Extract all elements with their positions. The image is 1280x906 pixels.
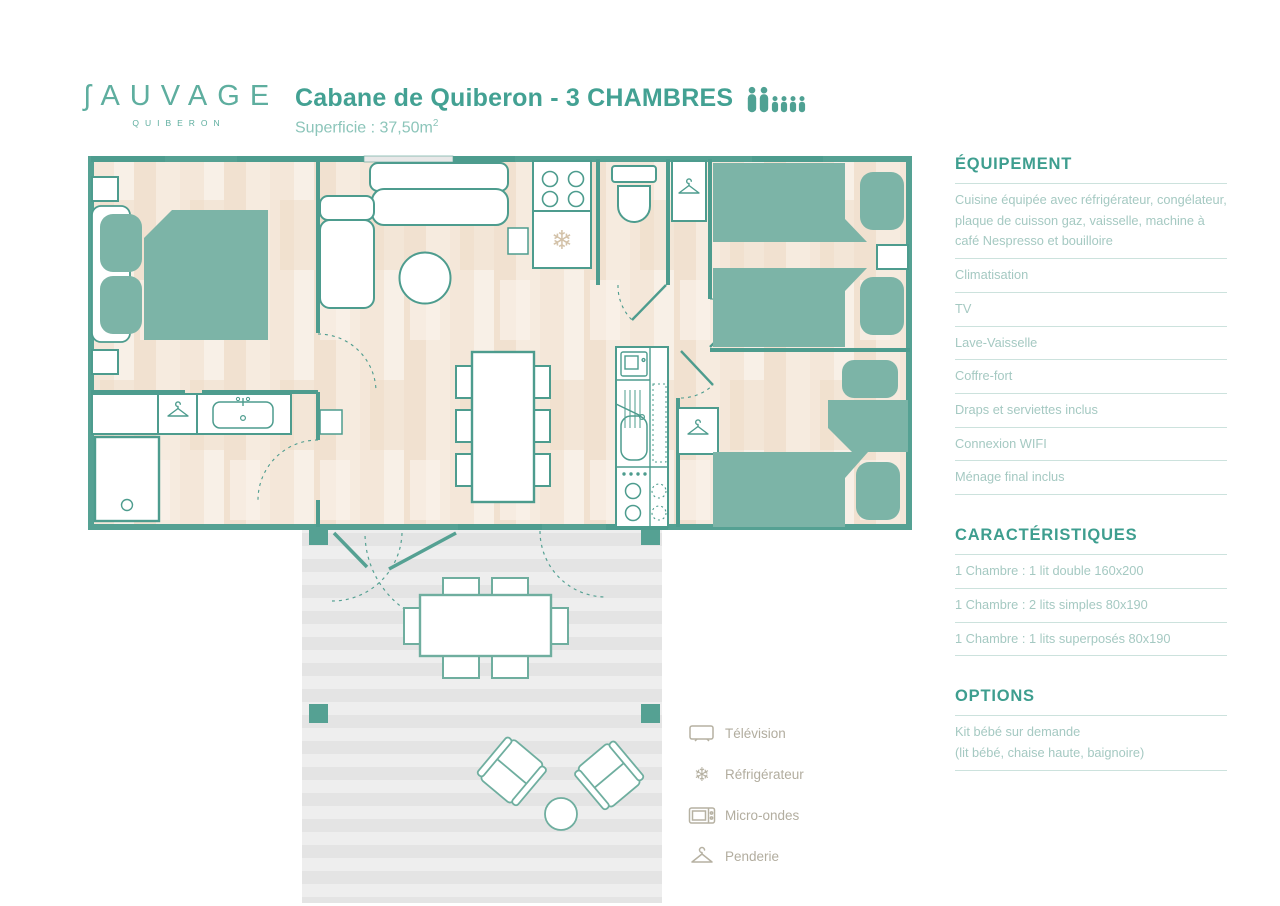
brochure-page: ❄ [0, 0, 1280, 906]
double-bed [92, 206, 268, 342]
legend-label: Penderie [725, 849, 779, 864]
dining-set [456, 352, 550, 502]
wall-shelf [320, 410, 342, 434]
side-table [545, 798, 577, 830]
coffee-table [400, 253, 451, 304]
list-item: 1 Chambre : 1 lits superposés 80x190 [955, 623, 1227, 657]
page-title: Cabane de Quiberon - 3 CHAMBRES [295, 84, 733, 113]
legend-item: Penderie [688, 845, 804, 867]
list-item: Connexion WIFI [955, 428, 1227, 462]
capacity-icons [745, 85, 807, 113]
info-panel: ÉQUIPEMENT Cuisine équipée avec réfrigér… [955, 155, 1227, 802]
hanger-icon [688, 845, 716, 867]
list-item: Ménage final inclus [955, 461, 1227, 495]
list-item: Coffre-fort [955, 360, 1227, 394]
characteristics-list: 1 Chambre : 1 lit double 160x200 1 Chamb… [955, 554, 1227, 656]
window-strip [364, 156, 453, 162]
nightstand [92, 350, 118, 374]
tv-icon [688, 722, 716, 744]
shower [95, 437, 159, 521]
brand-name: ʃAUVAGE [84, 82, 274, 111]
list-item: Cuisine équipée avec réfrigérateur, cong… [955, 184, 1227, 259]
option-line: Kit bébé sur demande [955, 722, 1227, 743]
wardrobe [158, 394, 198, 434]
option-line: (lit bébé, chaise haute, baignoire) [955, 743, 1227, 764]
title-block: Cabane de Quiberon - 3 CHAMBRES Superfic… [295, 84, 807, 137]
vanity-sink [197, 394, 291, 434]
list-item: Kit bébé sur demande (lit bébé, chaise h… [955, 716, 1227, 770]
characteristics-title: CARACTÉRISTIQUES [955, 526, 1227, 545]
brand-logo: ʃAUVAGE QUIBERON [84, 82, 274, 128]
microwave-icon [688, 804, 716, 826]
options-list: Kit bébé sur demande (lit bébé, chaise h… [955, 715, 1227, 770]
hall-wardrobe-top [672, 161, 706, 221]
list-item: Climatisation [955, 259, 1227, 293]
legend-label: Micro-ondes [725, 808, 799, 823]
legend-label: Réfrigérateur [725, 767, 804, 782]
list-item: TV [955, 293, 1227, 327]
options-title: OPTIONS [955, 687, 1227, 706]
cabinet [92, 394, 158, 434]
side-table [508, 228, 528, 254]
options-section: OPTIONS Kit bébé sur demande (lit bébé, … [955, 687, 1227, 770]
brand-rest: AUVAGE [100, 80, 279, 112]
area-label: Superficie : 37,50m2 [295, 118, 807, 137]
brand-place: QUIBERON [84, 118, 274, 128]
svg-text:❄: ❄ [694, 764, 710, 785]
legend-item: ❄ Réfrigérateur [688, 763, 804, 785]
list-item: 1 Chambre : 2 lits simples 80x190 [955, 589, 1227, 623]
nightstand [92, 177, 118, 201]
legend: Télévision ❄ Réfrigérateur Micro-ondes [688, 722, 804, 886]
list-item: Draps et serviettes inclus [955, 394, 1227, 428]
list-item: Lave-Vaisselle [955, 327, 1227, 361]
kitchen-counter [616, 347, 668, 527]
legend-item: Télévision [688, 722, 804, 744]
snowflake-icon: ❄ [688, 763, 716, 785]
legend-item: Micro-ondes [688, 804, 804, 826]
terrace [302, 526, 662, 903]
kitchen-block: ❄ [533, 161, 591, 268]
fridge-snowflake-icon: ❄ [551, 226, 573, 256]
characteristics-section: CARACTÉRISTIQUES 1 Chambre : 1 lit doubl… [955, 526, 1227, 656]
list-item: 1 Chambre : 1 lit double 160x200 [955, 555, 1227, 589]
dining-table [472, 352, 534, 502]
hall-wardrobe-bottom [678, 408, 718, 454]
bunk-bed-bottom [713, 452, 900, 527]
equipment-section: ÉQUIPEMENT Cuisine équipée avec réfrigér… [955, 155, 1227, 495]
equipment-list: Cuisine équipée avec réfrigérateur, cong… [955, 183, 1227, 495]
equipment-title: ÉQUIPEMENT [955, 155, 1227, 174]
legend-label: Télévision [725, 726, 786, 741]
nightstand [877, 245, 908, 269]
brand-s-glyph: ʃ [84, 80, 100, 112]
